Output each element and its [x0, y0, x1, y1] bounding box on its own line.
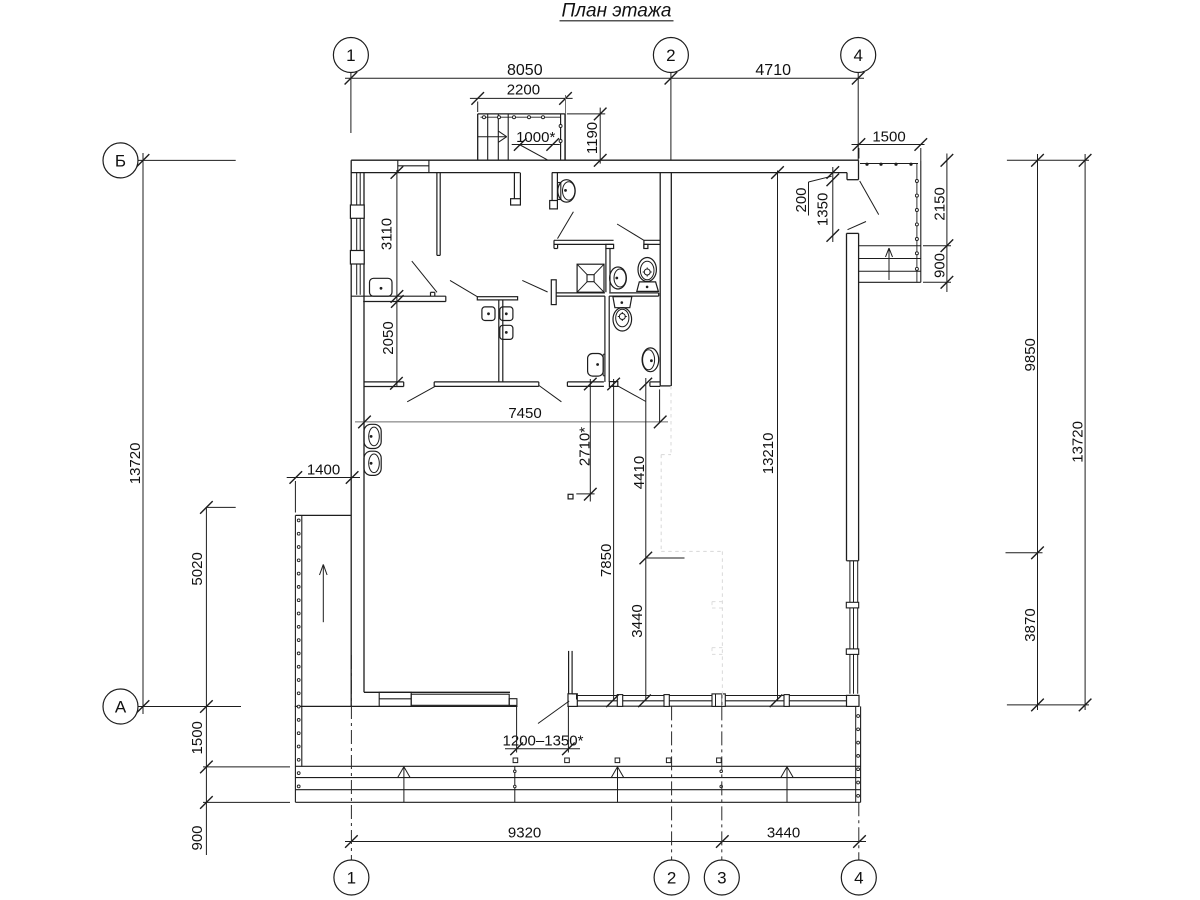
svg-text:8050: 8050	[507, 62, 543, 79]
svg-text:900: 900	[189, 825, 206, 850]
svg-text:2: 2	[666, 46, 675, 65]
svg-text:2710*: 2710*	[577, 427, 594, 466]
svg-text:1500: 1500	[872, 129, 905, 146]
svg-text:1500: 1500	[189, 721, 206, 754]
svg-text:9850: 9850	[1022, 338, 1039, 371]
svg-text:13720: 13720	[1070, 421, 1087, 463]
svg-text:5020: 5020	[189, 552, 206, 585]
svg-text:7450: 7450	[508, 405, 541, 422]
svg-text:13720: 13720	[127, 443, 144, 485]
svg-text:3870: 3870	[1022, 608, 1039, 641]
svg-text:1190: 1190	[584, 122, 601, 154]
svg-text:3440: 3440	[629, 604, 646, 637]
svg-text:4: 4	[853, 46, 862, 65]
svg-text:4410: 4410	[631, 456, 648, 489]
svg-text:1400: 1400	[307, 461, 340, 478]
svg-text:1: 1	[346, 46, 355, 65]
svg-text:2150: 2150	[932, 187, 949, 220]
svg-text:1350: 1350	[815, 193, 832, 226]
svg-text:900: 900	[932, 253, 949, 278]
svg-text:4710: 4710	[755, 62, 791, 79]
svg-text:7850: 7850	[598, 544, 615, 577]
svg-text:3110: 3110	[379, 218, 396, 250]
svg-text:Б: Б	[115, 152, 126, 171]
svg-text:3440: 3440	[767, 825, 800, 842]
svg-text:13210: 13210	[760, 433, 777, 475]
svg-text:2200: 2200	[507, 82, 540, 99]
svg-text:1: 1	[347, 869, 356, 888]
svg-text:3: 3	[717, 869, 726, 888]
svg-text:План этажа: План этажа	[562, 1, 672, 22]
svg-text:1000*: 1000*	[516, 129, 555, 146]
svg-text:9320: 9320	[508, 825, 541, 842]
svg-text:4: 4	[854, 869, 863, 888]
svg-text:2: 2	[667, 869, 676, 888]
svg-text:1200–1350*: 1200–1350*	[503, 732, 584, 749]
svg-text:А: А	[115, 698, 127, 717]
svg-text:200: 200	[793, 187, 810, 212]
svg-text:2050: 2050	[380, 321, 397, 354]
